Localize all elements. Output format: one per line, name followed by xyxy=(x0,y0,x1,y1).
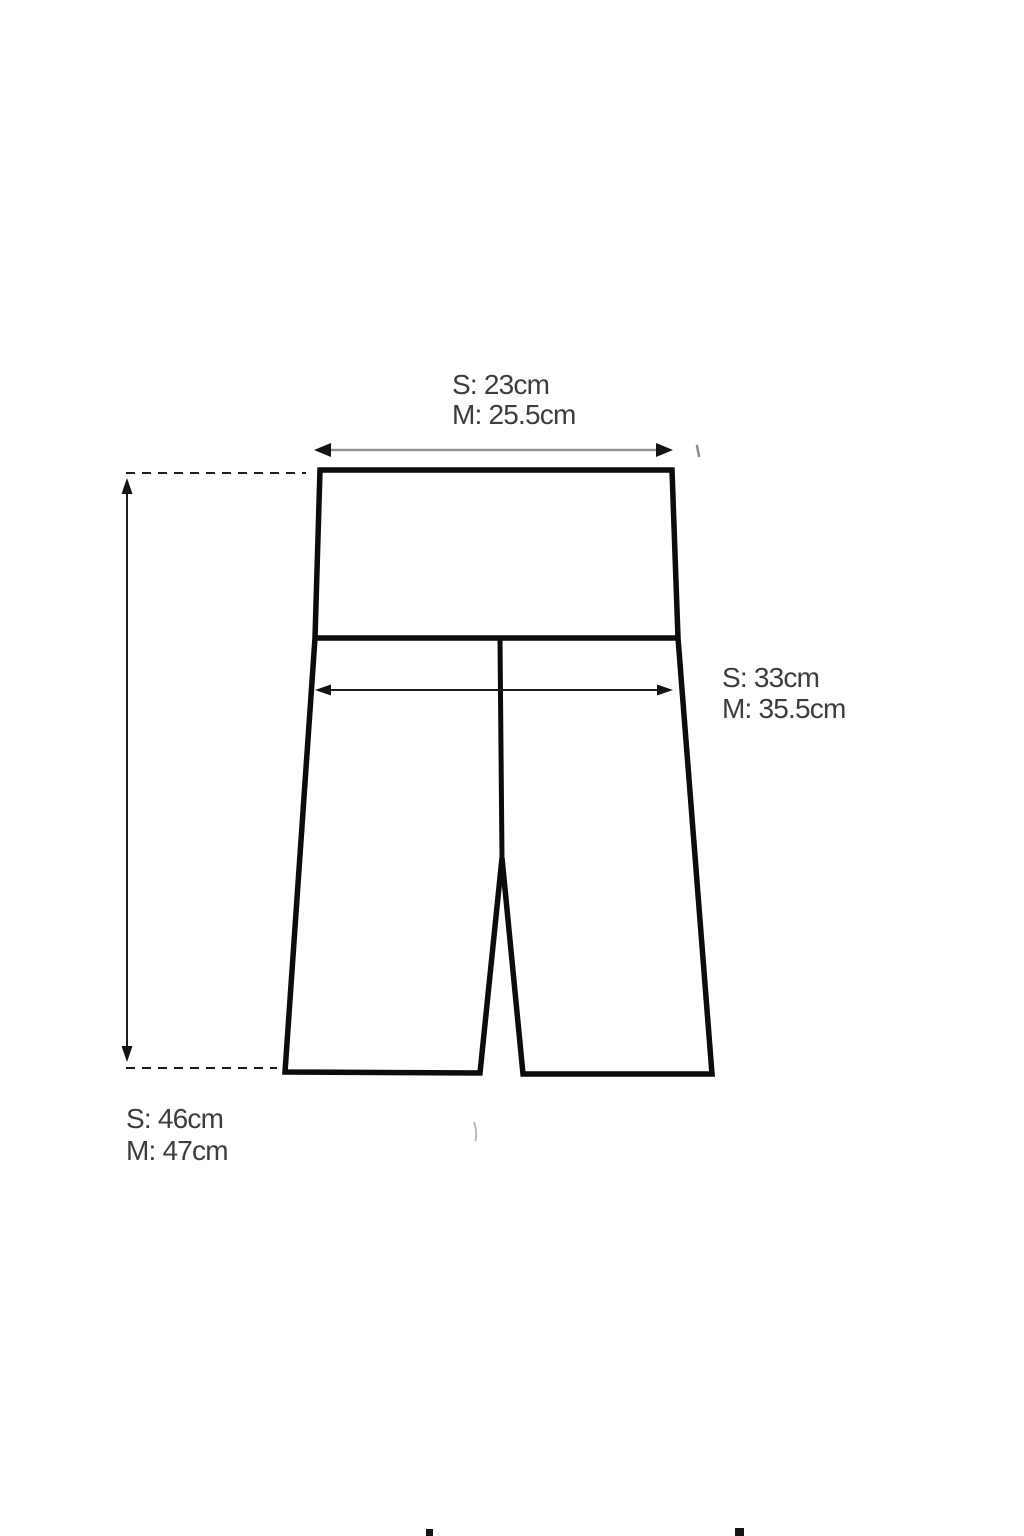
stray-tick-mark xyxy=(697,446,699,456)
length-label: S: 46cm M: 47cm xyxy=(126,1103,228,1166)
hip-width-label-s: S: 33cm xyxy=(722,662,819,693)
waist-width-label: S: 23cm M: 25.5cm xyxy=(452,369,576,430)
length-label-s: S: 46cm xyxy=(126,1103,223,1134)
waist-width-label-m: M: 25.5cm xyxy=(452,399,576,430)
hip-width-label-m: M: 35.5cm xyxy=(722,693,846,724)
arrow-down-icon xyxy=(122,1046,133,1062)
arrow-left-icon xyxy=(315,685,331,696)
hip-width-label: S: 33cm M: 35.5cm xyxy=(722,662,846,724)
waist-width-arrow xyxy=(314,443,673,457)
arrow-left-icon xyxy=(314,443,331,457)
bottom-edge-speck-right xyxy=(735,1528,744,1536)
center-seam-line xyxy=(500,640,502,858)
arrow-up-icon xyxy=(122,478,133,494)
garment-measurement-diagram: S: 23cm M: 25.5cm S: 33cm M: 35.5cm S: 4… xyxy=(0,0,1024,1536)
bottom-edge-speck-left xyxy=(426,1529,433,1536)
length-label-m: M: 47cm xyxy=(126,1135,228,1166)
waist-width-label-s: S: 23cm xyxy=(452,369,549,400)
shorts-outline xyxy=(285,470,712,1074)
arrow-right-icon xyxy=(656,443,673,457)
hip-width-arrow xyxy=(315,685,673,696)
faint-curved-mark xyxy=(474,1122,476,1141)
arrow-right-icon xyxy=(657,685,673,696)
size-chart-page: S: 23cm M: 25.5cm S: 33cm M: 35.5cm S: 4… xyxy=(0,0,1024,1536)
length-arrow xyxy=(122,478,133,1062)
